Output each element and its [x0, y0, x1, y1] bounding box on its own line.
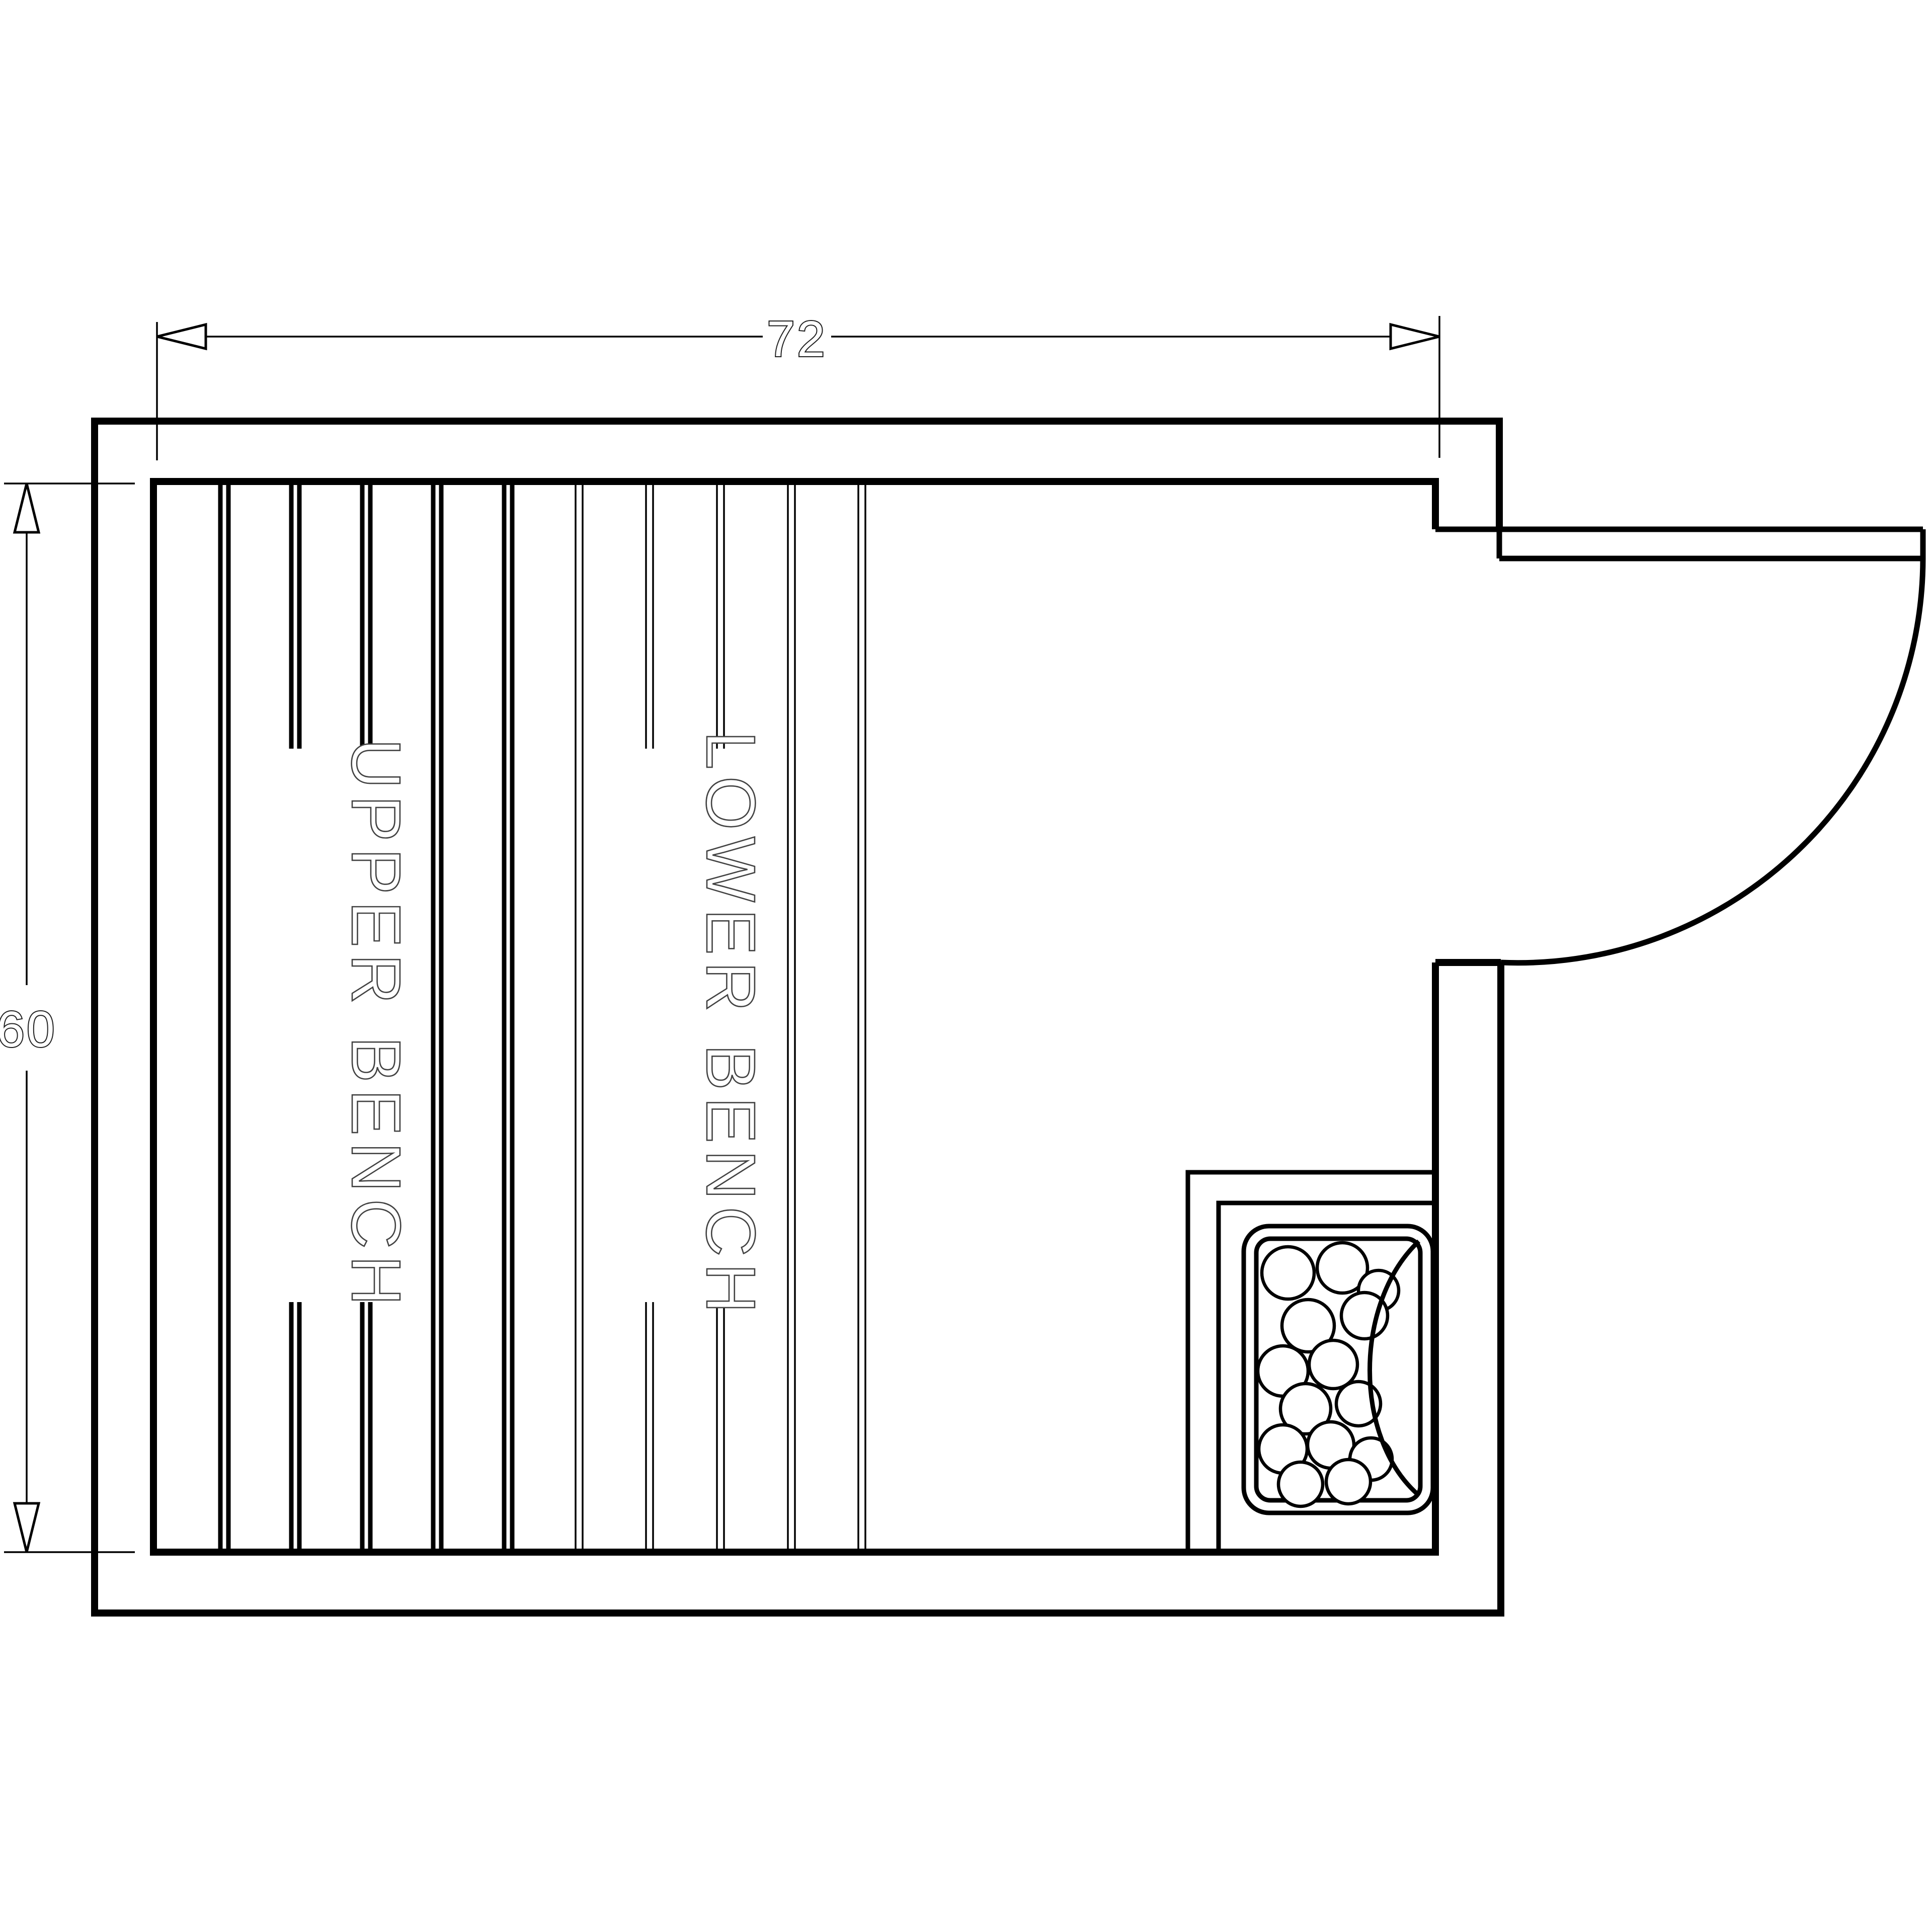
height-dimension-label: 60: [0, 1001, 57, 1058]
lower-bench-label: LOWER BENCH: [692, 731, 769, 1320]
heater-stone: [1278, 1462, 1323, 1506]
heater-stone: [1262, 1247, 1314, 1299]
upper-bench-label-group: UPPER BENCH: [286, 739, 415, 1312]
upper-bench-label: UPPER BENCH: [337, 739, 415, 1312]
sauna-floor-plan: UPPER BENCH LOWER BENCH 72 60: [0, 0, 1932, 1932]
heater-stone: [1309, 1340, 1357, 1389]
lower-bench-label-group: LOWER BENCH: [640, 731, 769, 1320]
heater-stone: [1326, 1460, 1371, 1504]
width-dimension-label: 72: [767, 311, 827, 367]
